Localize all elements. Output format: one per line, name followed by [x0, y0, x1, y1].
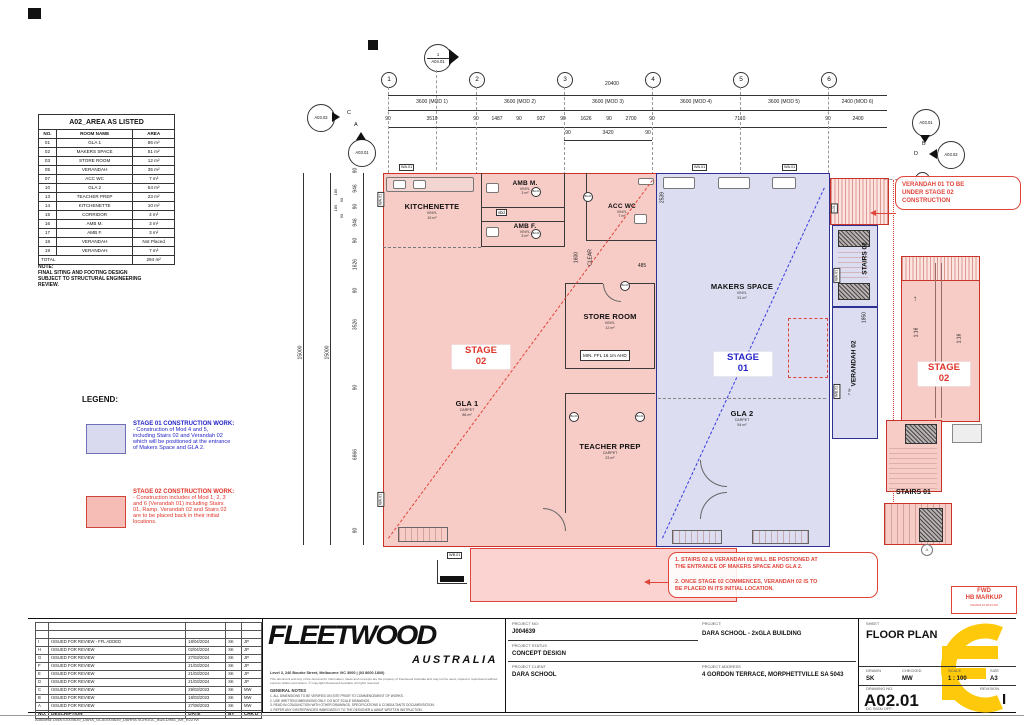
project-no-label: PROJECT NO:	[512, 622, 539, 626]
wall	[481, 207, 565, 208]
dim-mod4: 3600 (MOD 4)	[652, 100, 740, 105]
section-marker-a04: 1 A04.01	[424, 44, 452, 72]
dim-label: 90	[553, 131, 583, 136]
marker-ref: A03.02	[314, 115, 327, 120]
revision-row: FISSUED FOR REVIEW21/03/2024SKJP	[36, 663, 262, 671]
project-status-label: PROJECT STATUS	[512, 644, 547, 648]
wall-tag: WB.01	[447, 552, 462, 559]
dim-line	[564, 140, 652, 141]
legend-stage02-body: - Construction includes of Mod 1, 2, 3 a…	[133, 495, 269, 525]
cloud-note-verandah01: VERANDAH 01 TO BE UNDER STAGE 02 CONSTRU…	[895, 176, 1021, 210]
joinery-row	[672, 530, 722, 544]
siting-note: NOTE: FINAL SITING AND FOOTING DESIGN SU…	[38, 264, 188, 288]
legend-stage01-swatch	[86, 424, 126, 454]
revision-table: IISSUED FOR REVIEW - FFL ADDED18/04/2024…	[35, 622, 262, 719]
dim-callout: 185	[334, 197, 338, 219]
area-table: A02_AREA AS LISTED NO. ROOM NAME AREA 01…	[38, 114, 175, 265]
verandah01-hatch	[830, 178, 889, 225]
door-tag: BA.01	[635, 412, 645, 422]
bench-fixture	[663, 177, 695, 189]
wall	[565, 393, 566, 513]
room-store: STORE ROOM VINYL 12 m²	[570, 313, 650, 330]
file-path-footnote: Autodesk Docs://J004639_DARA_GLA/J004639…	[35, 717, 199, 722]
wall	[654, 283, 655, 369]
general-notes: 1. ALL DIMENSIONS TO BE VERIFIED ON SITE…	[270, 694, 500, 713]
leader-arrow-icon	[870, 210, 876, 216]
corner-mark	[28, 8, 41, 19]
room-area: 54 m²	[702, 423, 782, 427]
wall-tag: WB.01	[833, 384, 840, 399]
titleblock-border	[28, 618, 1016, 619]
wall	[481, 173, 482, 247]
stairs01-label: STAIRS 01	[896, 489, 931, 496]
revision-row: DISSUED FOR REVIEW21/03/2024SKJP	[36, 679, 262, 687]
table-row: 15CORRIDOR4 m²	[39, 211, 175, 220]
dim-label: 90	[354, 373, 359, 403]
ref-bubble-a: A	[921, 544, 933, 556]
door-tag: BA.01	[620, 281, 630, 291]
grid-bubble-2: 2	[469, 72, 485, 88]
section-marker-right-inner: A03.01	[912, 109, 940, 137]
revision-row: GISSUED FOR REVIEW27/03/2024SKJP	[36, 655, 262, 663]
dim-label: 90	[354, 276, 359, 306]
titleblock-divider	[505, 618, 506, 712]
area-table-title: A02_AREA AS LISTED	[39, 115, 175, 130]
bulkhead-line	[383, 247, 481, 248]
grid-bubble-4: 4	[645, 72, 661, 88]
room-gla2: GLA 2 CARPET 54 m²	[702, 410, 782, 427]
project-status-value: CONCEPT DESIGN	[512, 651, 566, 657]
scale-bar	[440, 576, 464, 582]
dim-2539: 2539	[661, 183, 666, 213]
room-area: 51 m²	[702, 296, 782, 300]
legend-stage01: STAGE 01 CONSTRUCTION WORK: - Constructi…	[133, 421, 267, 451]
table-row: 18VERANDAHNot Placed	[39, 238, 175, 247]
room-acc-wc: ACC WC VINYL 7 m²	[592, 203, 652, 219]
room-name: KITCHENETTE	[392, 203, 472, 211]
section-marker-left-inner: A03.01	[348, 139, 376, 167]
room-area: 3 m²	[495, 234, 555, 238]
wall-tag: WA.01	[377, 192, 384, 207]
dim-485: 485	[630, 264, 654, 269]
grid-row-letter-c: C	[347, 110, 351, 116]
joinery-row	[398, 527, 448, 542]
wall	[481, 221, 565, 222]
ramp-rail	[935, 263, 942, 418]
room-name: GLA 1	[427, 400, 507, 408]
stamp-line2: HB MARKUP	[952, 595, 1016, 602]
section-marker-ref: A04.01	[431, 59, 444, 64]
door-tag: BA.01	[569, 412, 579, 422]
grid-line	[828, 87, 829, 173]
wall-tag: WA.01	[833, 268, 840, 283]
wall	[565, 393, 655, 394]
size-value: A3	[990, 676, 998, 682]
room-name: TEACHER PREP	[570, 443, 650, 451]
stamp-line1: FWD	[952, 587, 1016, 595]
stairs02-label: STAIRS 02	[862, 234, 869, 284]
table-row: 01GLA 186 m²	[39, 139, 175, 148]
grid-line	[388, 87, 389, 173]
project-client-value: DARA SCHOOL	[512, 672, 556, 678]
table-row: 17AMB F.3 m²	[39, 229, 175, 238]
revision-history: IISSUED FOR REVIEW - FFL ADDED18/04/2024…	[35, 622, 262, 719]
project-no-value: J004639	[512, 629, 535, 635]
note-body: FINAL SITING AND FOOTING DESIGN SUBJECT …	[38, 270, 188, 288]
area-schedule: A02_AREA AS LISTED NO. ROOM NAME AREA 01…	[38, 114, 175, 265]
revision-label: REVISION	[980, 687, 999, 691]
ramp-stage02-label: STAGE 02	[918, 362, 970, 386]
table-row: 16AMB M.3 m²	[39, 220, 175, 229]
bench-fixture	[718, 177, 750, 189]
sheet-label: SHEET	[866, 622, 879, 626]
size-label: SIZE	[990, 669, 999, 673]
verandah02-area: 7 m²	[848, 380, 851, 404]
dim-label: 6866	[354, 440, 359, 470]
wall	[586, 173, 587, 241]
dim-mod6: 2400 (MOD 6)	[828, 100, 887, 105]
section-marker-left-outer: A03.02	[307, 104, 335, 132]
marker-ref: A03.01	[919, 120, 932, 125]
room-name: AMB F.	[495, 223, 555, 230]
joinery-row	[752, 530, 809, 544]
col-no: NO.	[39, 130, 57, 139]
grid-bubble-5: 5	[733, 72, 749, 88]
dim-label: 2400	[843, 117, 873, 122]
marker-arrow-icon	[356, 132, 366, 140]
ramp-lower-block	[886, 420, 942, 492]
grid-bubble-6: 6	[821, 72, 837, 88]
vbd-tag: vbd	[496, 209, 507, 216]
section-cut-mark	[368, 40, 378, 50]
room-teacher-prep: TEACHER PREP CARPET 23 m²	[570, 443, 650, 460]
grid-row-letter-a: A	[354, 122, 358, 128]
dim-mod1: 3600 (MOD 1)	[388, 100, 476, 105]
titleblock-rule	[508, 640, 698, 641]
future-stairs-outline	[788, 318, 828, 378]
dim-overall-top: 20400	[590, 82, 634, 87]
wall-tag: WA.01	[377, 492, 384, 507]
room-name: MAKERS SPACE	[702, 283, 782, 291]
dim-label: 3510	[417, 117, 447, 122]
marker-ref: A03.02	[944, 152, 957, 157]
footer-rule	[0, 715, 1024, 716]
dim-label: 90	[354, 516, 359, 546]
project-address-label: PROJECT ADDRESS	[702, 665, 741, 669]
stamp-date: 9/2/2024 10:28:44 AM	[952, 603, 1016, 607]
room-amb-f: AMB F. VINYL 3 m²	[495, 223, 555, 239]
wall	[565, 283, 603, 284]
room-amb-m: AMB M. VINYL 3 m²	[495, 180, 555, 196]
company-address: Level 3, 246 Bourke Street, Melbourne VI…	[270, 671, 384, 675]
scale-label: SCALE	[948, 669, 961, 673]
room-name: GLA 2	[702, 410, 782, 418]
stage01-label: STAGE 01	[714, 352, 772, 376]
legend-stage02-swatch	[86, 496, 126, 528]
landing-hatch-outside	[952, 424, 982, 443]
dim-overall-left: 15000	[299, 333, 304, 373]
titleblock-rule	[859, 666, 1016, 667]
cloud-note-stairs: 1. STAIRS 02 & VERANDAH 02 WILL BE POSTI…	[668, 552, 878, 598]
bench-fixture	[772, 177, 796, 189]
legend-stage02: STAGE 02 CONSTRUCTION WORK: - Constructi…	[133, 489, 269, 525]
dim-1850: 1850	[863, 306, 868, 330]
stage-number: 02	[454, 357, 508, 368]
project-address-value: 4 GORDON TERRACE, MORPHETTVILLE SA 5043	[702, 672, 843, 678]
grid-bubble-3: 3	[557, 72, 573, 88]
stage02-label: STAGE 02	[452, 345, 510, 369]
drawn-label: DRAWN	[866, 669, 881, 673]
revision-row-empty	[36, 623, 262, 631]
room-kitchenette: KITCHENETTE VINYL 10 m²	[392, 203, 472, 220]
company-disclaimer: This document and any of the documents' …	[270, 677, 498, 685]
dim-label: 3526	[354, 310, 359, 340]
revision-value: I	[1002, 691, 1006, 708]
sheet-title: FLOOR PLAN	[866, 629, 938, 641]
landing-hatch	[905, 424, 937, 444]
room-area: 12 m²	[570, 326, 650, 330]
sink-fixture	[413, 180, 426, 189]
dim-line	[388, 127, 887, 128]
room-gla1: GLA 1 CARPET 86 m²	[427, 400, 507, 417]
wall	[565, 368, 655, 369]
sink-fixture	[393, 180, 406, 189]
checked-value: MW	[902, 676, 913, 682]
company-country: AUSTRALIA	[370, 654, 498, 666]
col-room-name: ROOM NAME	[56, 130, 132, 139]
wall	[586, 240, 656, 241]
drawn-value: SK	[866, 676, 874, 682]
titleblock-rule	[508, 661, 856, 662]
room-area: 10 m²	[392, 216, 472, 220]
dim-clear: 1600	[575, 243, 580, 273]
revision-row-empty	[36, 631, 262, 639]
grid-bubble-1: 1	[381, 72, 397, 88]
stair-tread-hatch	[838, 283, 870, 300]
revision-row: HISSUED FOR REVIEW02/04/2024SKJP	[36, 647, 262, 655]
ffl-label: MIN. FFL 16.1m AHD	[580, 350, 630, 361]
table-row: 07ACC WC7 m²	[39, 175, 175, 184]
stage-number: 02	[920, 374, 968, 385]
revision-row: CISSUED FOR REVIEW29/03/2023SKMW	[36, 687, 262, 695]
marker-arrow-icon	[332, 112, 340, 122]
table-row: 03STORE ROOM12 m²	[39, 157, 175, 166]
dim-line	[363, 173, 364, 545]
grid-row-letter-d: D	[914, 151, 918, 157]
table-row: 02MAKERS SPACE51 m²	[39, 148, 175, 157]
leader-arrow-icon	[644, 579, 650, 585]
dim-callout: 90	[340, 205, 344, 227]
titleblock-divider	[858, 618, 859, 712]
dim-mod3: 3600 (MOD 3)	[564, 100, 652, 105]
drawing-sheet: A02_AREA AS LISTED NO. ROOM NAME AREA 01…	[0, 0, 1024, 725]
legend-title: LEGEND:	[82, 395, 118, 404]
ramp-up-arrow-icon: ↑	[913, 294, 917, 303]
marker-arrow-icon	[929, 149, 937, 159]
revision-row: AISSUED FOR REVIEW27/08/2023SKMW	[36, 703, 262, 711]
stage-number: 01	[716, 364, 770, 375]
ramp-slope: 1:16	[915, 321, 920, 345]
wall-tag: WA.01	[399, 164, 414, 171]
dim-label: 90	[633, 131, 663, 136]
dim-clear-label: CLEAR	[589, 243, 594, 273]
project-client-label: PROJECT CLIENT	[512, 665, 546, 669]
table-row: 19VERANDAH7 m²	[39, 247, 175, 256]
scale-value: 1 : 100	[948, 676, 967, 682]
marker-line	[437, 560, 438, 583]
dim-mod5: 3600 (MOD 5)	[740, 100, 828, 105]
dim-mod2: 3600 (MOD 2)	[476, 100, 564, 105]
revision-row: IISSUED FOR REVIEW - FFL ADDED18/04/2024…	[36, 639, 262, 647]
dim-line	[388, 95, 887, 96]
table-row: 05VERANDAH35 m²	[39, 166, 175, 175]
checked-label: CHECKED	[902, 669, 922, 673]
section-marker-right-outer: A03.02	[937, 141, 965, 169]
wall	[481, 246, 565, 247]
dim-overall-left: 15000	[326, 333, 331, 373]
revision-row: BISSUED FOR REVIEW18/03/2023SKMW	[36, 695, 262, 703]
dc-signoff-label: DC SIGN OFF:	[866, 707, 893, 711]
room-area: 3 m²	[495, 191, 555, 195]
company-logo: FLEETWOOD	[268, 624, 498, 649]
titleblock-divider	[262, 618, 263, 712]
stairs01-block	[884, 503, 952, 545]
room-name: ACC WC	[592, 203, 652, 210]
marker-line	[437, 583, 467, 584]
wall	[564, 173, 565, 247]
wall-tag: WA.01	[782, 164, 797, 171]
room-name: STORE ROOM	[570, 313, 650, 321]
operable-wall-line	[658, 398, 826, 399]
revision-row: EISSUED FOR REVIEW21/03/2024SKJP	[36, 671, 262, 679]
table-row: 14KITCHENETTE10 m²	[39, 202, 175, 211]
dim-line	[388, 110, 887, 111]
ramp-slope: 1:16	[958, 327, 963, 351]
project-label: PROJECT:	[702, 622, 721, 626]
door-tag: BA.01	[583, 192, 593, 202]
stair-tread-hatch	[919, 508, 943, 542]
room-area: 7 m²	[592, 214, 652, 218]
ramp-treads	[889, 445, 937, 489]
table-row: 10GLA 254 m²	[39, 184, 175, 193]
stairs02-block	[832, 225, 878, 307]
room-area: 23 m²	[570, 456, 650, 460]
general-notes-title: GENERAL NOTES	[270, 688, 306, 693]
room-makers-space: MAKERS SPACE VINYL 51 m²	[702, 283, 782, 300]
wall-tag: WA.01	[692, 164, 707, 171]
room-name: AMB M.	[495, 180, 555, 187]
col-area: AREA	[133, 130, 175, 139]
project-value: DARA SCHOOL - 2xGLA BUILDING	[702, 631, 801, 637]
room-area: 86 m²	[427, 413, 507, 417]
markup-stamp: FWD HB MARKUP 9/2/2024 10:28:44 AM	[951, 586, 1017, 614]
grid-row-letter-b: B	[922, 141, 926, 147]
table-row: 13TEACHER PREP23 m²	[39, 193, 175, 202]
wall-tag: L01	[831, 203, 838, 213]
leader-line	[650, 582, 668, 583]
leader-line	[876, 213, 896, 214]
legend-stage01-body: - Construction of Mod 4 and 5, including…	[133, 427, 267, 451]
section-arrow-icon	[449, 49, 459, 65]
dim-label: 3420	[593, 131, 623, 136]
